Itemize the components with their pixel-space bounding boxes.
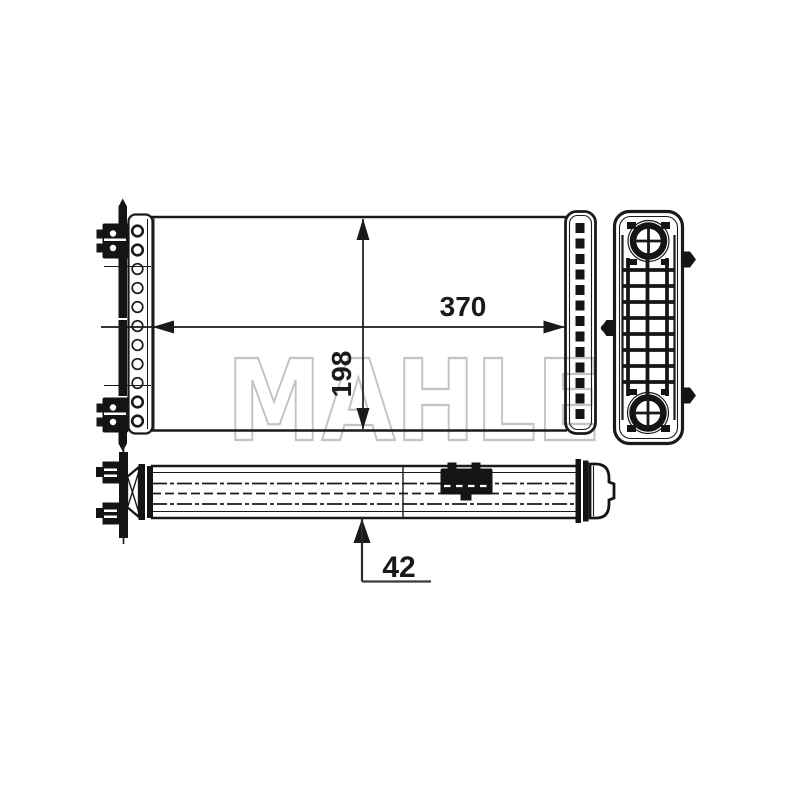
right-end-cap [576,459,615,523]
dimension-width: 370 [101,291,565,334]
right-tank [566,212,596,434]
arrowhead-left [153,321,175,334]
left-tab [601,320,616,336]
bottom-port [627,389,670,434]
internal-grid [622,258,675,396]
top-port [627,221,670,266]
right-tab-top [681,252,696,268]
heat-exchanger-drawing: MAHLE [0,0,800,800]
dimension-depth: 42 [354,518,432,584]
arrowhead-up [357,219,370,241]
side-view [601,212,697,444]
left-pipe-connection [96,446,153,544]
dimension-height-label: 198 [326,351,357,398]
mounting-clip [441,463,493,501]
right-tab-bottom [681,388,696,404]
inlet-fitting [97,224,129,259]
dimension-depth-label: 42 [382,551,415,584]
outlet-fitting [97,398,129,433]
arrowhead-right [544,321,566,334]
technical-drawing-page: MAHLE [0,0,800,800]
tube-scallops [132,226,143,427]
brand-watermark: MAHLE [227,337,602,467]
dimension-height: 198 [326,219,370,430]
dimension-width-label: 370 [440,291,487,322]
